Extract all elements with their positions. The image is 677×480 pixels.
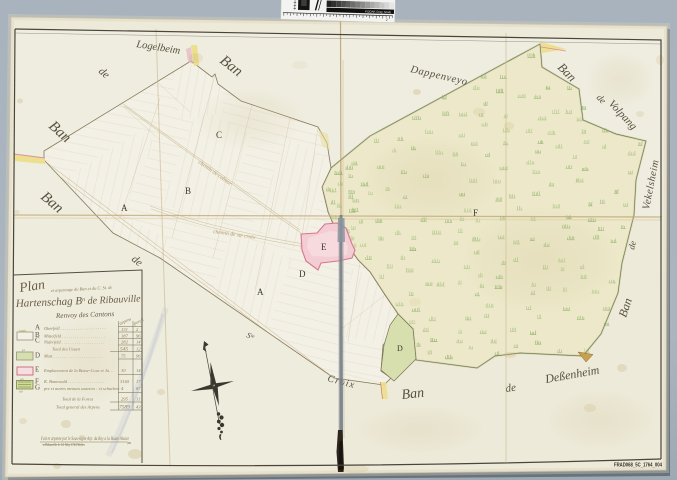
svg-text:FRAD068_5C_1764_004: FRAD068_5C_1764_004	[614, 463, 663, 469]
svg-text:ttb: ttb	[19, 390, 23, 394]
svg-text:96: 96	[136, 334, 141, 339]
svg-text:G: G	[35, 384, 40, 392]
svg-text:pl: pl	[21, 348, 25, 352]
svg-text:14: 14	[136, 340, 141, 345]
svg-text:2: 2	[386, 18, 388, 22]
svg-text:Ban: Ban	[401, 386, 425, 403]
svg-text:C: C	[35, 337, 40, 345]
svg-text:ws: ws	[20, 377, 24, 381]
svg-text:B: B	[185, 186, 191, 196]
svg-text:Total general des Arpens: Total general des Arpens	[56, 405, 100, 410]
svg-text:E: E	[321, 242, 327, 252]
svg-text:A: A	[121, 203, 128, 213]
svg-text:KODAK Gray Scale: KODAK Gray Scale	[365, 9, 392, 14]
svg-text:D: D	[299, 269, 306, 279]
svg-text:D: D	[397, 344, 403, 353]
svg-text:A: A	[257, 287, 264, 297]
svg-text:huatt: huatt	[19, 329, 27, 333]
svg-text:295: 295	[121, 397, 129, 402]
svg-text:a Ribauville le 14. May 1764: a Ribauville le 14. May 1764 Walter	[43, 443, 85, 447]
svg-text:43: 43	[136, 405, 141, 410]
svg-text:D: D	[35, 352, 40, 360]
svg-text:de: de	[505, 382, 517, 395]
svg-text:E: E	[35, 366, 39, 374]
